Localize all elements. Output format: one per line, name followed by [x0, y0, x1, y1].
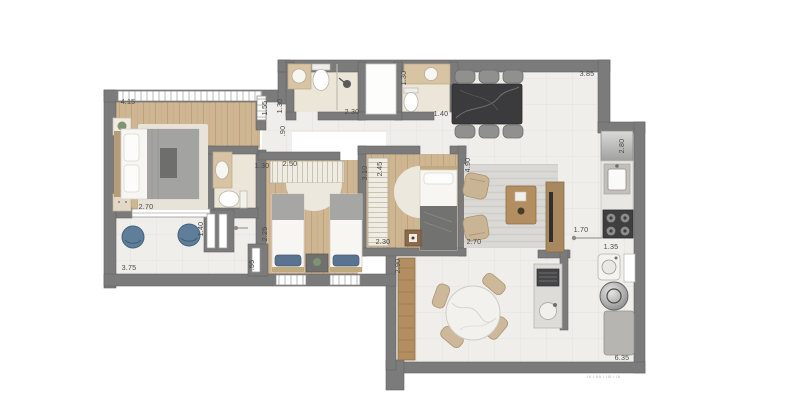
dim-bedroom2-left: 1.30 [255, 161, 270, 170]
dim-terrace-width: 3.75 [122, 263, 137, 272]
terrace-louver-b [219, 214, 227, 248]
armchair [462, 172, 490, 200]
ensuite-toilet-tank [240, 191, 247, 208]
bath2-sink [425, 68, 438, 81]
island-counter [534, 264, 562, 328]
bedroom2-window-a [276, 275, 306, 285]
dining-chairs-top [455, 70, 523, 83]
terrace-louver-a [207, 214, 215, 248]
vestibule-door-knob [234, 226, 238, 230]
shaft-box [366, 64, 396, 114]
dim-bedroom2-depth-left: 2.25 [260, 227, 269, 242]
dim-bedroom2-width: 2.50 [283, 159, 298, 168]
dresser-knob [125, 201, 127, 203]
dim-living-left: 2.90 [393, 259, 402, 274]
wall-bath1-bottom-a [286, 112, 296, 120]
bedroom2-bed-a [272, 194, 304, 272]
bath1-toilet [313, 70, 329, 91]
master-bed-headboard [114, 131, 121, 197]
kitchen-pass-door-knob [572, 236, 576, 240]
coffee-table [506, 186, 536, 224]
dim-hall-a: 1.55 [260, 101, 269, 116]
dining-chair [455, 70, 475, 83]
bed-pillow [424, 173, 453, 184]
dim-bedroom2-height: 3.10 [360, 166, 369, 181]
stove [603, 210, 633, 238]
burner-center [623, 229, 626, 232]
dim-bath2-width: 1.40 [434, 109, 449, 118]
bed-pillow [333, 255, 359, 266]
dim-master-window: 4.15 [121, 97, 136, 106]
dining-chair [479, 70, 499, 83]
dim-dining-width: 3.85 [580, 69, 595, 78]
service-door [624, 254, 635, 282]
dim-hall-b: 1.30 [275, 99, 284, 114]
tub-faucet-icon [615, 257, 618, 260]
wall-bedroom2-top [258, 152, 340, 160]
master-pillow-b [124, 165, 139, 192]
master-window [118, 91, 262, 101]
bed-blanket [330, 194, 362, 220]
dim-terrace-step: .55 [247, 260, 256, 271]
ensuite-toilet [219, 191, 239, 207]
frame-dot [412, 237, 415, 240]
bed-headboard [272, 267, 304, 272]
dim-kitchen-length: 2.80 [617, 139, 626, 154]
wall-right-main [634, 122, 645, 373]
wall-bedroom3-top-a [358, 146, 420, 154]
floor-plan-page: 4.15 2.70 3.75 1.30 2.50 2.30 1.40 3.85 … [0, 0, 800, 414]
bed-blanket [272, 194, 304, 220]
faucet-icon [615, 164, 619, 168]
table-deco-bowl [518, 208, 525, 215]
floor-plan-canvas: 4.15 2.70 3.75 1.30 2.50 2.30 1.40 3.85 … [0, 0, 800, 414]
dim-bath2-length: 1.30 [399, 71, 408, 86]
dim-hall-c: .90 [278, 126, 287, 137]
burner-center [609, 216, 612, 219]
dining-chairs-bottom [455, 125, 523, 138]
wall-bath2-bottom [402, 112, 434, 120]
dining-chair [479, 125, 499, 138]
bath1-shower-head-icon [343, 80, 351, 88]
washing-machine [600, 282, 628, 310]
bed-headboard [330, 267, 362, 272]
bath2-toilet [404, 93, 418, 112]
bed-pillow [275, 255, 301, 266]
plant-icon [313, 258, 321, 266]
burner-center [623, 216, 626, 219]
dim-bedroom3-width: 2.45 [375, 162, 384, 177]
dining-chair [503, 125, 523, 138]
cooktop-grill [537, 269, 559, 286]
burner-center [609, 229, 612, 232]
master-pillow-a [124, 134, 139, 161]
dining-area [452, 70, 523, 138]
master-bed-runner [160, 148, 177, 178]
dim-bedroom3-lower: 2.30 [376, 237, 391, 246]
kitchen-sink [608, 169, 626, 190]
wall-bottom [394, 362, 645, 373]
dim-service-side: 6.35 [615, 353, 630, 362]
tub-basin [602, 260, 616, 274]
round-marble-table [446, 286, 500, 340]
dim-master-width: 2.70 [139, 202, 154, 211]
terrace-chair-a [122, 226, 144, 248]
tv-panel [546, 182, 564, 252]
bedroom2-window-b [330, 275, 360, 285]
master-bedroom [113, 118, 208, 211]
dim-kitchen-opening: 1.70 [574, 225, 589, 234]
island-faucet-icon [553, 303, 557, 307]
dim-service-width: 1.35 [604, 242, 619, 251]
bedroom2-bed-b [330, 194, 362, 272]
dim-living-height: 4.90 [463, 158, 472, 173]
wall-right-upper [598, 60, 610, 132]
dining-chair [455, 125, 475, 138]
dresser-knob [118, 201, 120, 203]
bath1-sink [292, 69, 306, 83]
armchair-top [462, 172, 490, 200]
table-deco-book [515, 192, 526, 201]
dim-bath1-width: 2.30 [345, 107, 360, 116]
dim-terrace-depth: 1.40 [196, 222, 205, 237]
tv-icon [549, 192, 553, 242]
dim-living-width: 2.70 [467, 237, 482, 246]
bedroom2-wardrobe [270, 161, 344, 183]
bedroom3-bed [420, 166, 457, 250]
service-counter [604, 311, 634, 355]
fine-print: lll l llll l llll l lll [587, 375, 620, 379]
dining-chair [503, 70, 523, 83]
ensuite-sink [216, 161, 229, 179]
